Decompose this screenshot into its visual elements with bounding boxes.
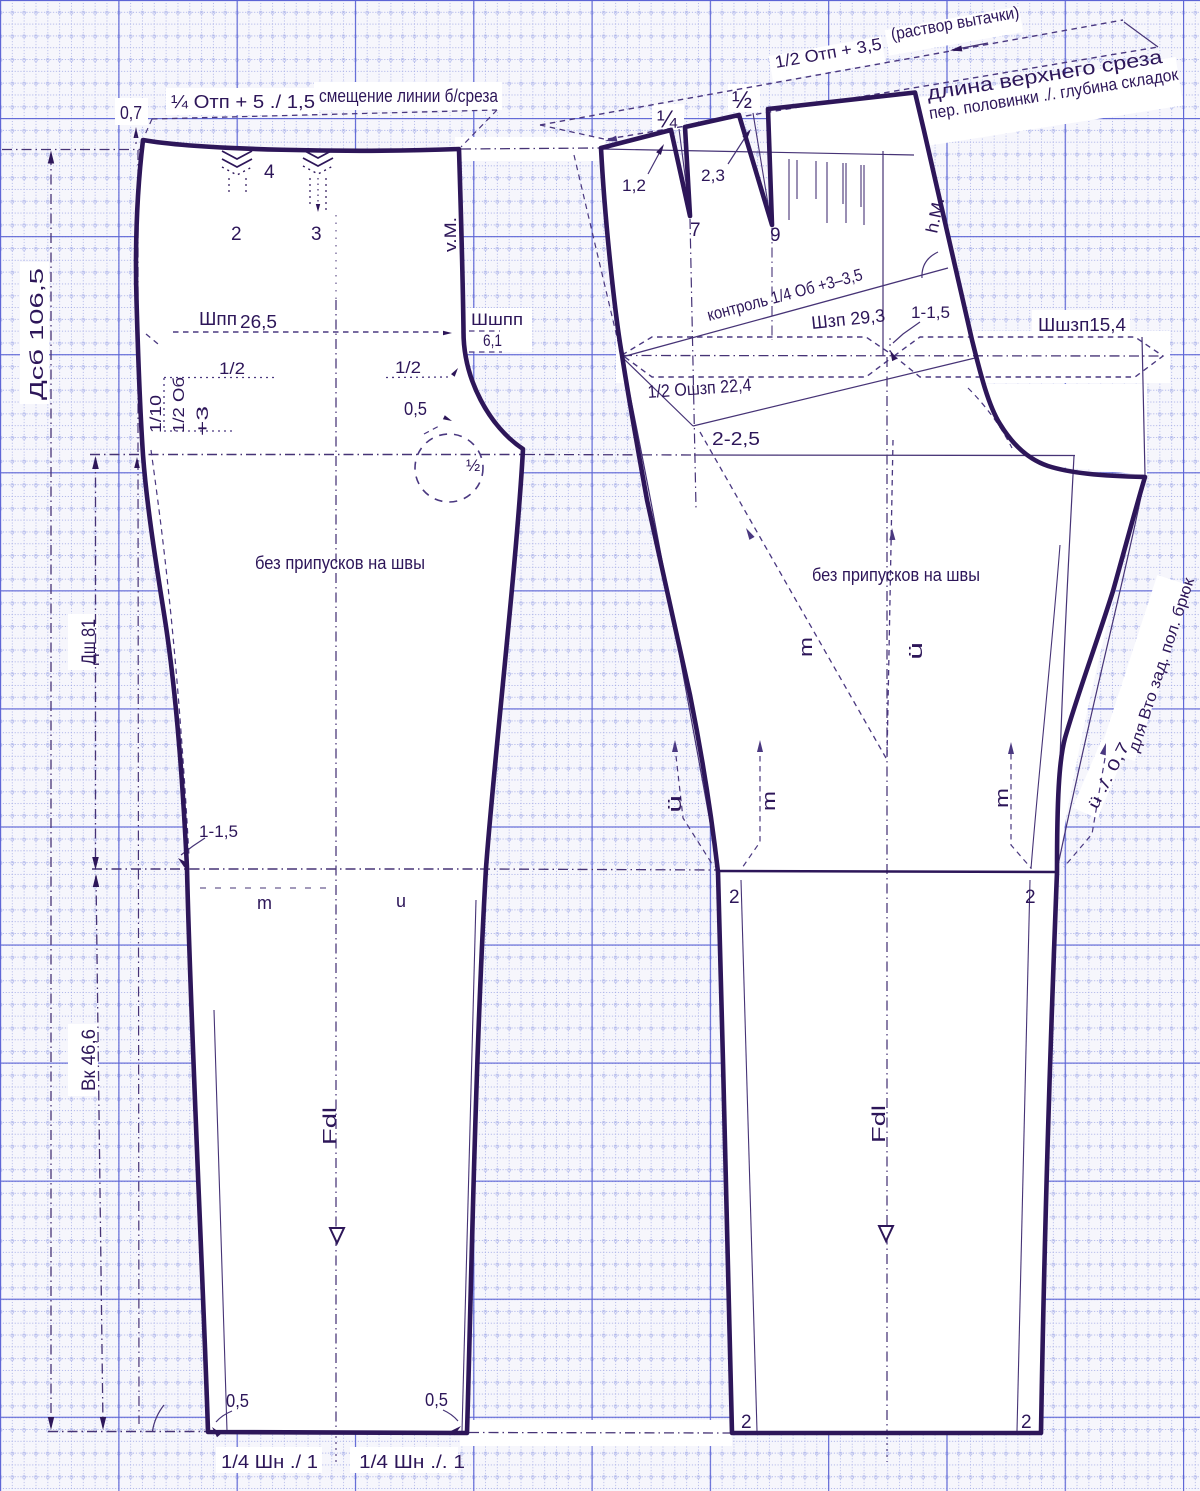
- svg-text:9: 9: [770, 225, 781, 246]
- svg-text:Fdl: Fdl: [869, 1105, 889, 1143]
- svg-text:m: m: [992, 788, 1012, 808]
- svg-text:¼: ¼: [657, 106, 678, 133]
- svg-text:2: 2: [729, 887, 740, 908]
- svg-text:v.M.: v.M.: [441, 217, 460, 252]
- svg-text:4: 4: [264, 162, 275, 183]
- svg-text:Шпп: Шпп: [199, 309, 237, 329]
- svg-text:0,7: 0,7: [120, 103, 142, 123]
- svg-text:u: u: [396, 891, 406, 911]
- svg-text:6,1: 6,1: [483, 331, 502, 350]
- svg-text:1/10: 1/10: [148, 395, 165, 433]
- svg-text:2: 2: [1025, 887, 1036, 908]
- svg-text:без припусков на швы: без припусков на швы: [812, 565, 980, 585]
- svg-text:2: 2: [1021, 1412, 1032, 1433]
- svg-text:1/4 Шн ./ 1: 1/4 Шн ./ 1: [221, 1452, 318, 1472]
- svg-text:2: 2: [741, 1412, 752, 1433]
- svg-text:Шшпп: Шшпп: [471, 310, 523, 329]
- svg-text:0,5: 0,5: [404, 399, 427, 419]
- svg-text:26,5: 26,5: [240, 312, 277, 332]
- svg-text:ü: ü: [906, 642, 926, 660]
- svg-text:m: m: [257, 893, 272, 913]
- svg-text:ü: ü: [665, 795, 685, 813]
- svg-text:Шшзп15,4: Шшзп15,4: [1038, 315, 1126, 335]
- svg-text:2,3: 2,3: [701, 166, 725, 185]
- svg-text:Вк 46,6: Вк 46,6: [79, 1029, 100, 1091]
- svg-text:1/2: 1/2: [395, 358, 421, 377]
- svg-text:0,5: 0,5: [425, 1390, 448, 1410]
- svg-text:без припусков на швы: без припусков на швы: [255, 553, 425, 573]
- svg-text:смещение линии б/среза: смещение линии б/среза: [319, 86, 499, 106]
- svg-text:1/2: 1/2: [219, 359, 245, 378]
- svg-text:0,5: 0,5: [226, 1391, 249, 1411]
- svg-text:Дш 81: Дш 81: [79, 619, 100, 665]
- svg-text:Дсб 106,5: Дсб 106,5: [27, 268, 47, 400]
- svg-text:1-1,5: 1-1,5: [911, 303, 950, 322]
- svg-text:m: m: [796, 637, 816, 657]
- svg-text:½: ½: [466, 456, 480, 475]
- svg-text:1/2 Об: 1/2 Об: [171, 377, 188, 433]
- svg-text:2: 2: [231, 224, 242, 245]
- svg-text:1-1,5: 1-1,5: [199, 822, 238, 841]
- svg-text:1,2: 1,2: [622, 176, 646, 195]
- svg-text:Fdl: Fdl: [320, 1107, 340, 1145]
- svg-text:7: 7: [690, 220, 701, 241]
- svg-text:1/4 Шн ./. 1: 1/4 Шн ./. 1: [359, 1452, 465, 1472]
- svg-text:m: m: [759, 791, 779, 811]
- svg-text:+3: +3: [193, 406, 212, 436]
- svg-text:3: 3: [311, 224, 322, 245]
- svg-text:½: ½: [732, 87, 752, 114]
- svg-text:¼ Отп + 5 ./ 1,5: ¼ Отп + 5 ./ 1,5: [171, 92, 315, 112]
- svg-text:2-2,5: 2-2,5: [712, 429, 760, 449]
